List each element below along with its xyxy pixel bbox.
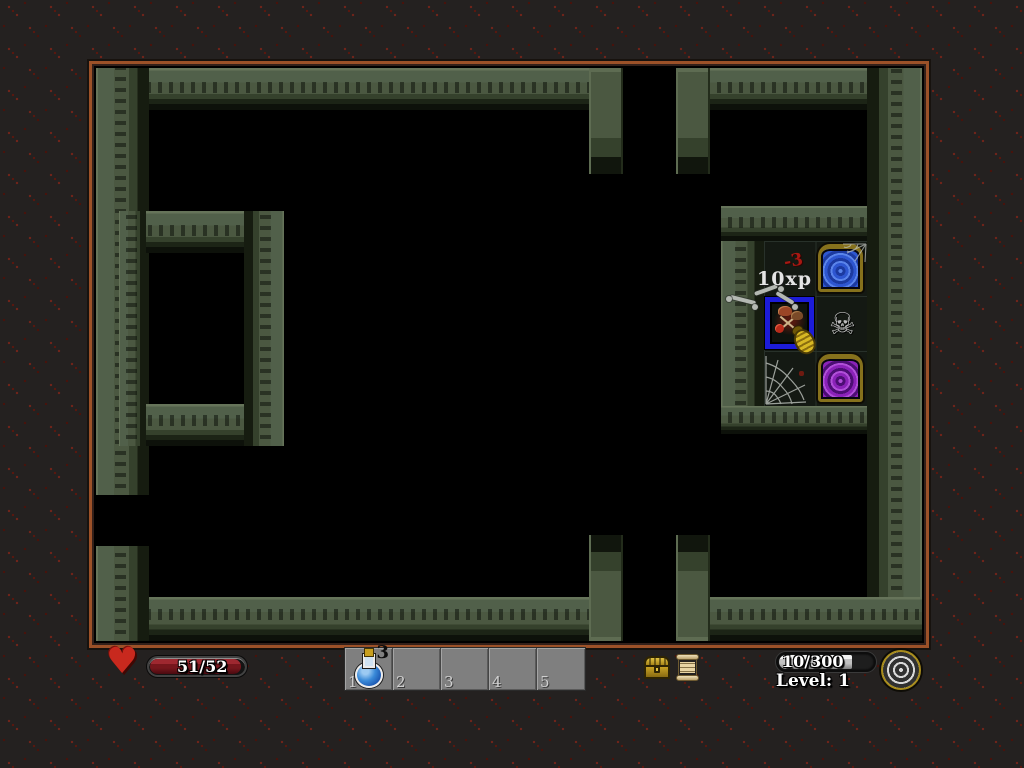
damage-floater: -3 bbox=[782, 250, 804, 273]
door-pillar-top-left bbox=[589, 68, 623, 174]
hotbar-slot-5[interactable]: 5 bbox=[537, 648, 585, 690]
scroll-roll-bottom bbox=[676, 675, 699, 681]
potion-count: 3 bbox=[376, 642, 389, 663]
level-label: Level: 1 bbox=[776, 671, 850, 691]
blood-speck bbox=[799, 371, 804, 376]
hotbar-slot-1[interactable]: 3 1 bbox=[345, 648, 393, 690]
health-bar: 51/52 bbox=[147, 656, 247, 677]
door-pillar-top-right bbox=[676, 68, 710, 174]
door-pillar-bottom-left bbox=[589, 535, 623, 641]
door-pillar-bottom-right bbox=[676, 535, 710, 641]
xp-bar: 10/300 bbox=[776, 652, 876, 672]
hotbar: 3 1 2 3 4 5 bbox=[345, 648, 585, 690]
red-berry bbox=[775, 324, 784, 333]
purple-portal[interactable] bbox=[818, 354, 863, 402]
scroll-journal-button[interactable] bbox=[676, 654, 699, 681]
chest-keyhole bbox=[656, 668, 658, 671]
slot-number: 5 bbox=[540, 673, 550, 691]
alcove-wall-left bbox=[119, 211, 146, 446]
slot-number: 2 bbox=[396, 673, 406, 691]
dungeon-frame: ☠ bbox=[89, 61, 929, 648]
spider-web-icon bbox=[765, 354, 807, 405]
slot-number: 4 bbox=[492, 673, 502, 691]
bullseye-options-button[interactable] bbox=[881, 650, 921, 690]
alcove-wall-right bbox=[244, 211, 284, 446]
slot-number: 3 bbox=[444, 673, 454, 691]
wall-bottom-right bbox=[710, 597, 922, 641]
wall-bottom-left bbox=[96, 597, 592, 641]
scroll-body bbox=[678, 659, 697, 676]
xp-value: 10/300 bbox=[782, 653, 844, 671]
hotbar-slot-3[interactable]: 3 bbox=[441, 648, 489, 690]
potion-cork bbox=[364, 648, 374, 657]
dungeon-room: ☠ bbox=[96, 68, 922, 641]
slot-number: 1 bbox=[348, 673, 358, 691]
xp-gain-floater: 10xp bbox=[757, 268, 812, 290]
heart-icon: ♥ bbox=[106, 644, 138, 680]
skull-icon: ☠ bbox=[818, 298, 867, 351]
room-wall-top bbox=[721, 206, 867, 241]
wall-left-lower bbox=[96, 546, 149, 641]
small-spider-web-icon bbox=[841, 243, 867, 263]
wall-top-left bbox=[96, 68, 592, 110]
wall-right bbox=[867, 68, 922, 641]
health-value: 51/52 bbox=[177, 657, 227, 676]
chest-inventory-button[interactable] bbox=[644, 656, 670, 679]
game-viewport: ☠ bbox=[0, 0, 1024, 768]
hotbar-slot-4[interactable]: 4 bbox=[489, 648, 537, 690]
room-wall-bottom bbox=[721, 406, 867, 434]
hotbar-slot-2[interactable]: 2 bbox=[393, 648, 441, 690]
